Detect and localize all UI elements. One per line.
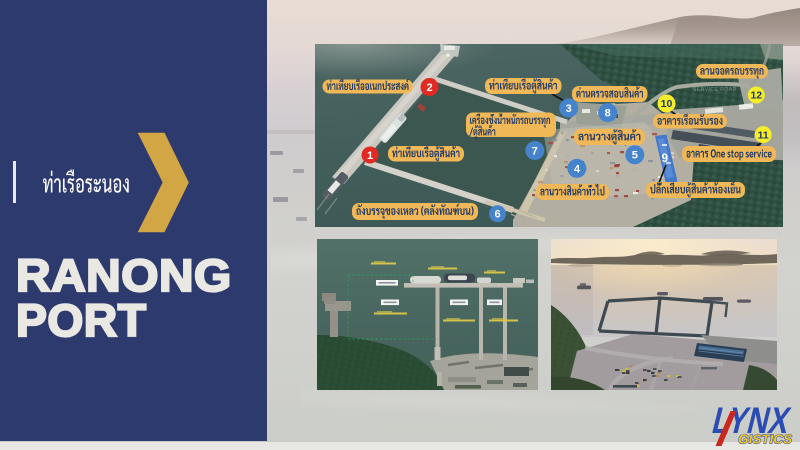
svg-text:3: 3 — [566, 103, 572, 115]
svg-text:1: 1 — [367, 150, 373, 162]
svg-text:GISTICS: GISTICS — [737, 432, 794, 447]
svg-text:2: 2 — [426, 82, 432, 94]
svg-text:8: 8 — [605, 108, 611, 120]
svg-text:5: 5 — [632, 150, 638, 162]
svg-text:12: 12 — [750, 90, 762, 102]
svg-text:7: 7 — [532, 145, 538, 157]
svg-text:11: 11 — [758, 129, 769, 141]
svg-text:6: 6 — [494, 209, 500, 221]
svg-text:4: 4 — [574, 163, 581, 175]
svg-text:10: 10 — [661, 98, 673, 110]
svg-text:SERVICE ROAD: SERVICE ROAD — [693, 87, 737, 93]
svg-text:9: 9 — [662, 153, 668, 165]
